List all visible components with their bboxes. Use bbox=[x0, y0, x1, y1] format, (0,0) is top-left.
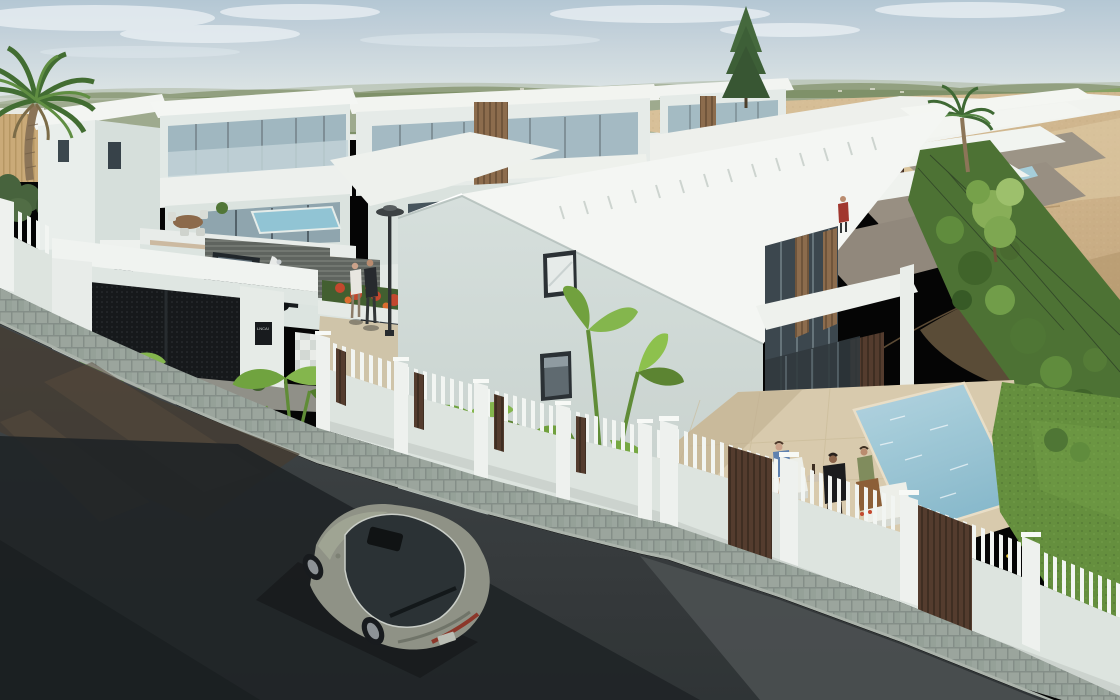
atmosphere-haze bbox=[0, 0, 1120, 700]
render-canvas: LNCAI bbox=[0, 0, 1120, 700]
architectural-render-scene: LNCAI bbox=[0, 0, 1120, 700]
